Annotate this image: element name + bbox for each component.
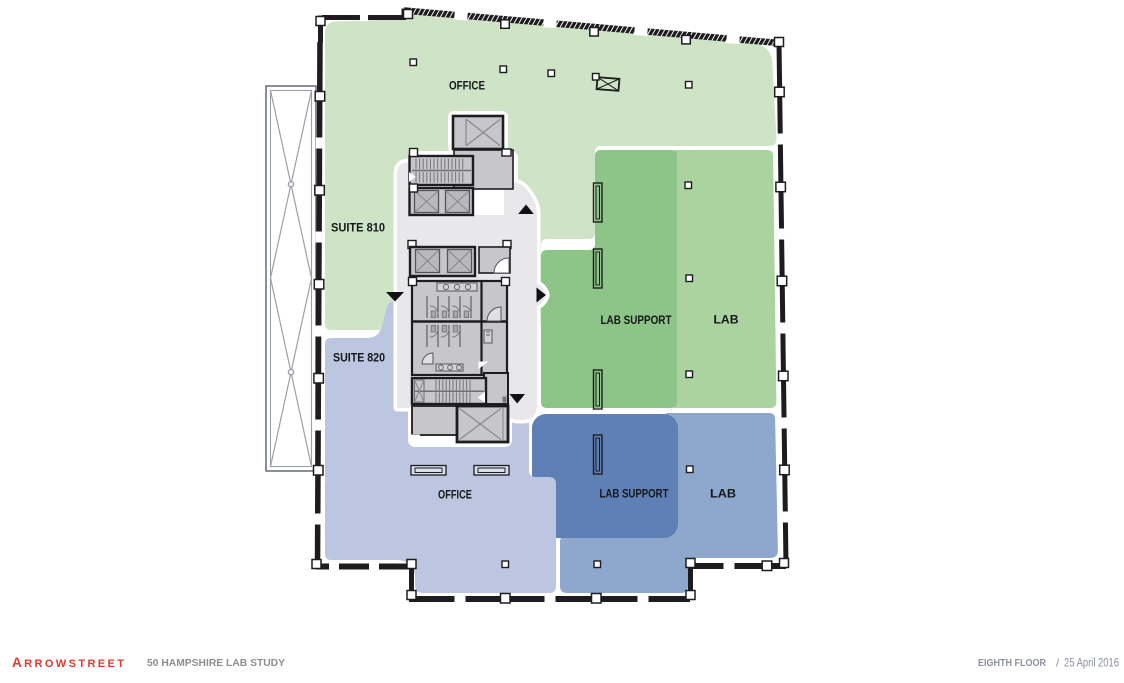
svg-text:SUITE 810: SUITE 810: [331, 223, 385, 235]
svg-text:LAB SUPPORT: LAB SUPPORT: [600, 489, 669, 501]
svg-text:OFFICE: OFFICE: [438, 490, 472, 502]
svg-text:SUITE 820: SUITE 820: [333, 353, 385, 365]
svg-text:LAB SUPPORT: LAB SUPPORT: [601, 315, 672, 327]
svg-text:ARROWSTREET: ARROWSTREET: [12, 655, 126, 670]
svg-text:LAB: LAB: [714, 315, 739, 327]
svg-text:50 HAMPSHIRE LAB STUDY: 50 HAMPSHIRE LAB STUDY: [147, 657, 285, 669]
svg-text:25 April 2016: 25 April 2016: [1064, 658, 1119, 670]
svg-text:OFFICE: OFFICE: [449, 81, 485, 93]
svg-text:EIGHTH FLOOR: EIGHTH FLOOR: [978, 657, 1046, 669]
svg-text:LAB: LAB: [710, 489, 736, 501]
